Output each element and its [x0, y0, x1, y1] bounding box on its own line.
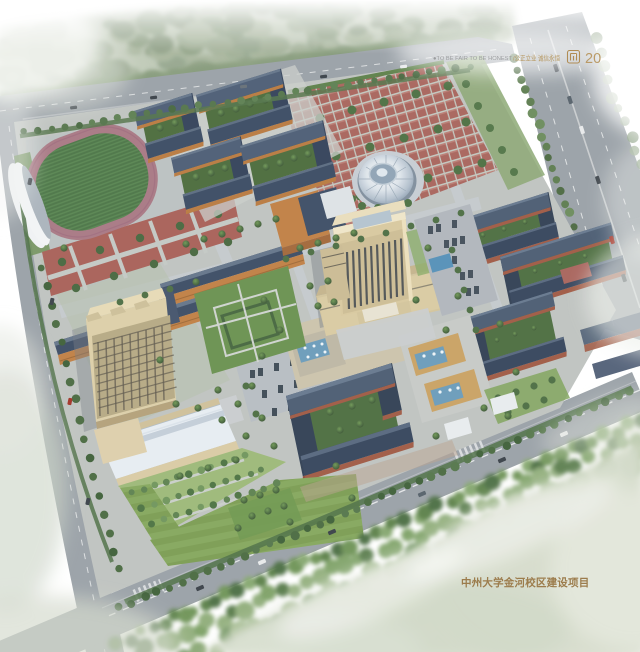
svg-text:/公正立业 诚信永恒: /公正立业 诚信永恒 — [513, 54, 560, 63]
svg-text:●TO BE FAIR TO BE HONEST: ●TO BE FAIR TO BE HONEST — [433, 56, 512, 62]
svg-text:20: 20 — [585, 51, 601, 67]
svg-text:中州大学金河校区建设项目: 中州大学金河校区建设项目 — [461, 576, 589, 589]
